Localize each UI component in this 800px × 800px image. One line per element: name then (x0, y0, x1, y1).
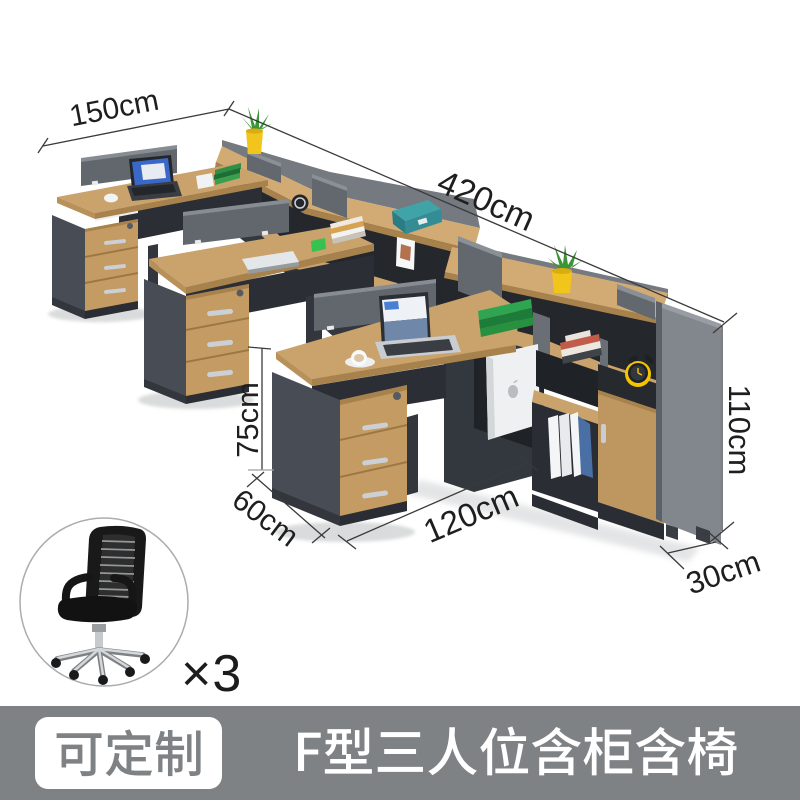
svg-text:×3: ×3 (181, 645, 242, 703)
svg-text:75cm: 75cm (230, 382, 265, 458)
svg-text:110cm: 110cm (722, 385, 757, 476)
